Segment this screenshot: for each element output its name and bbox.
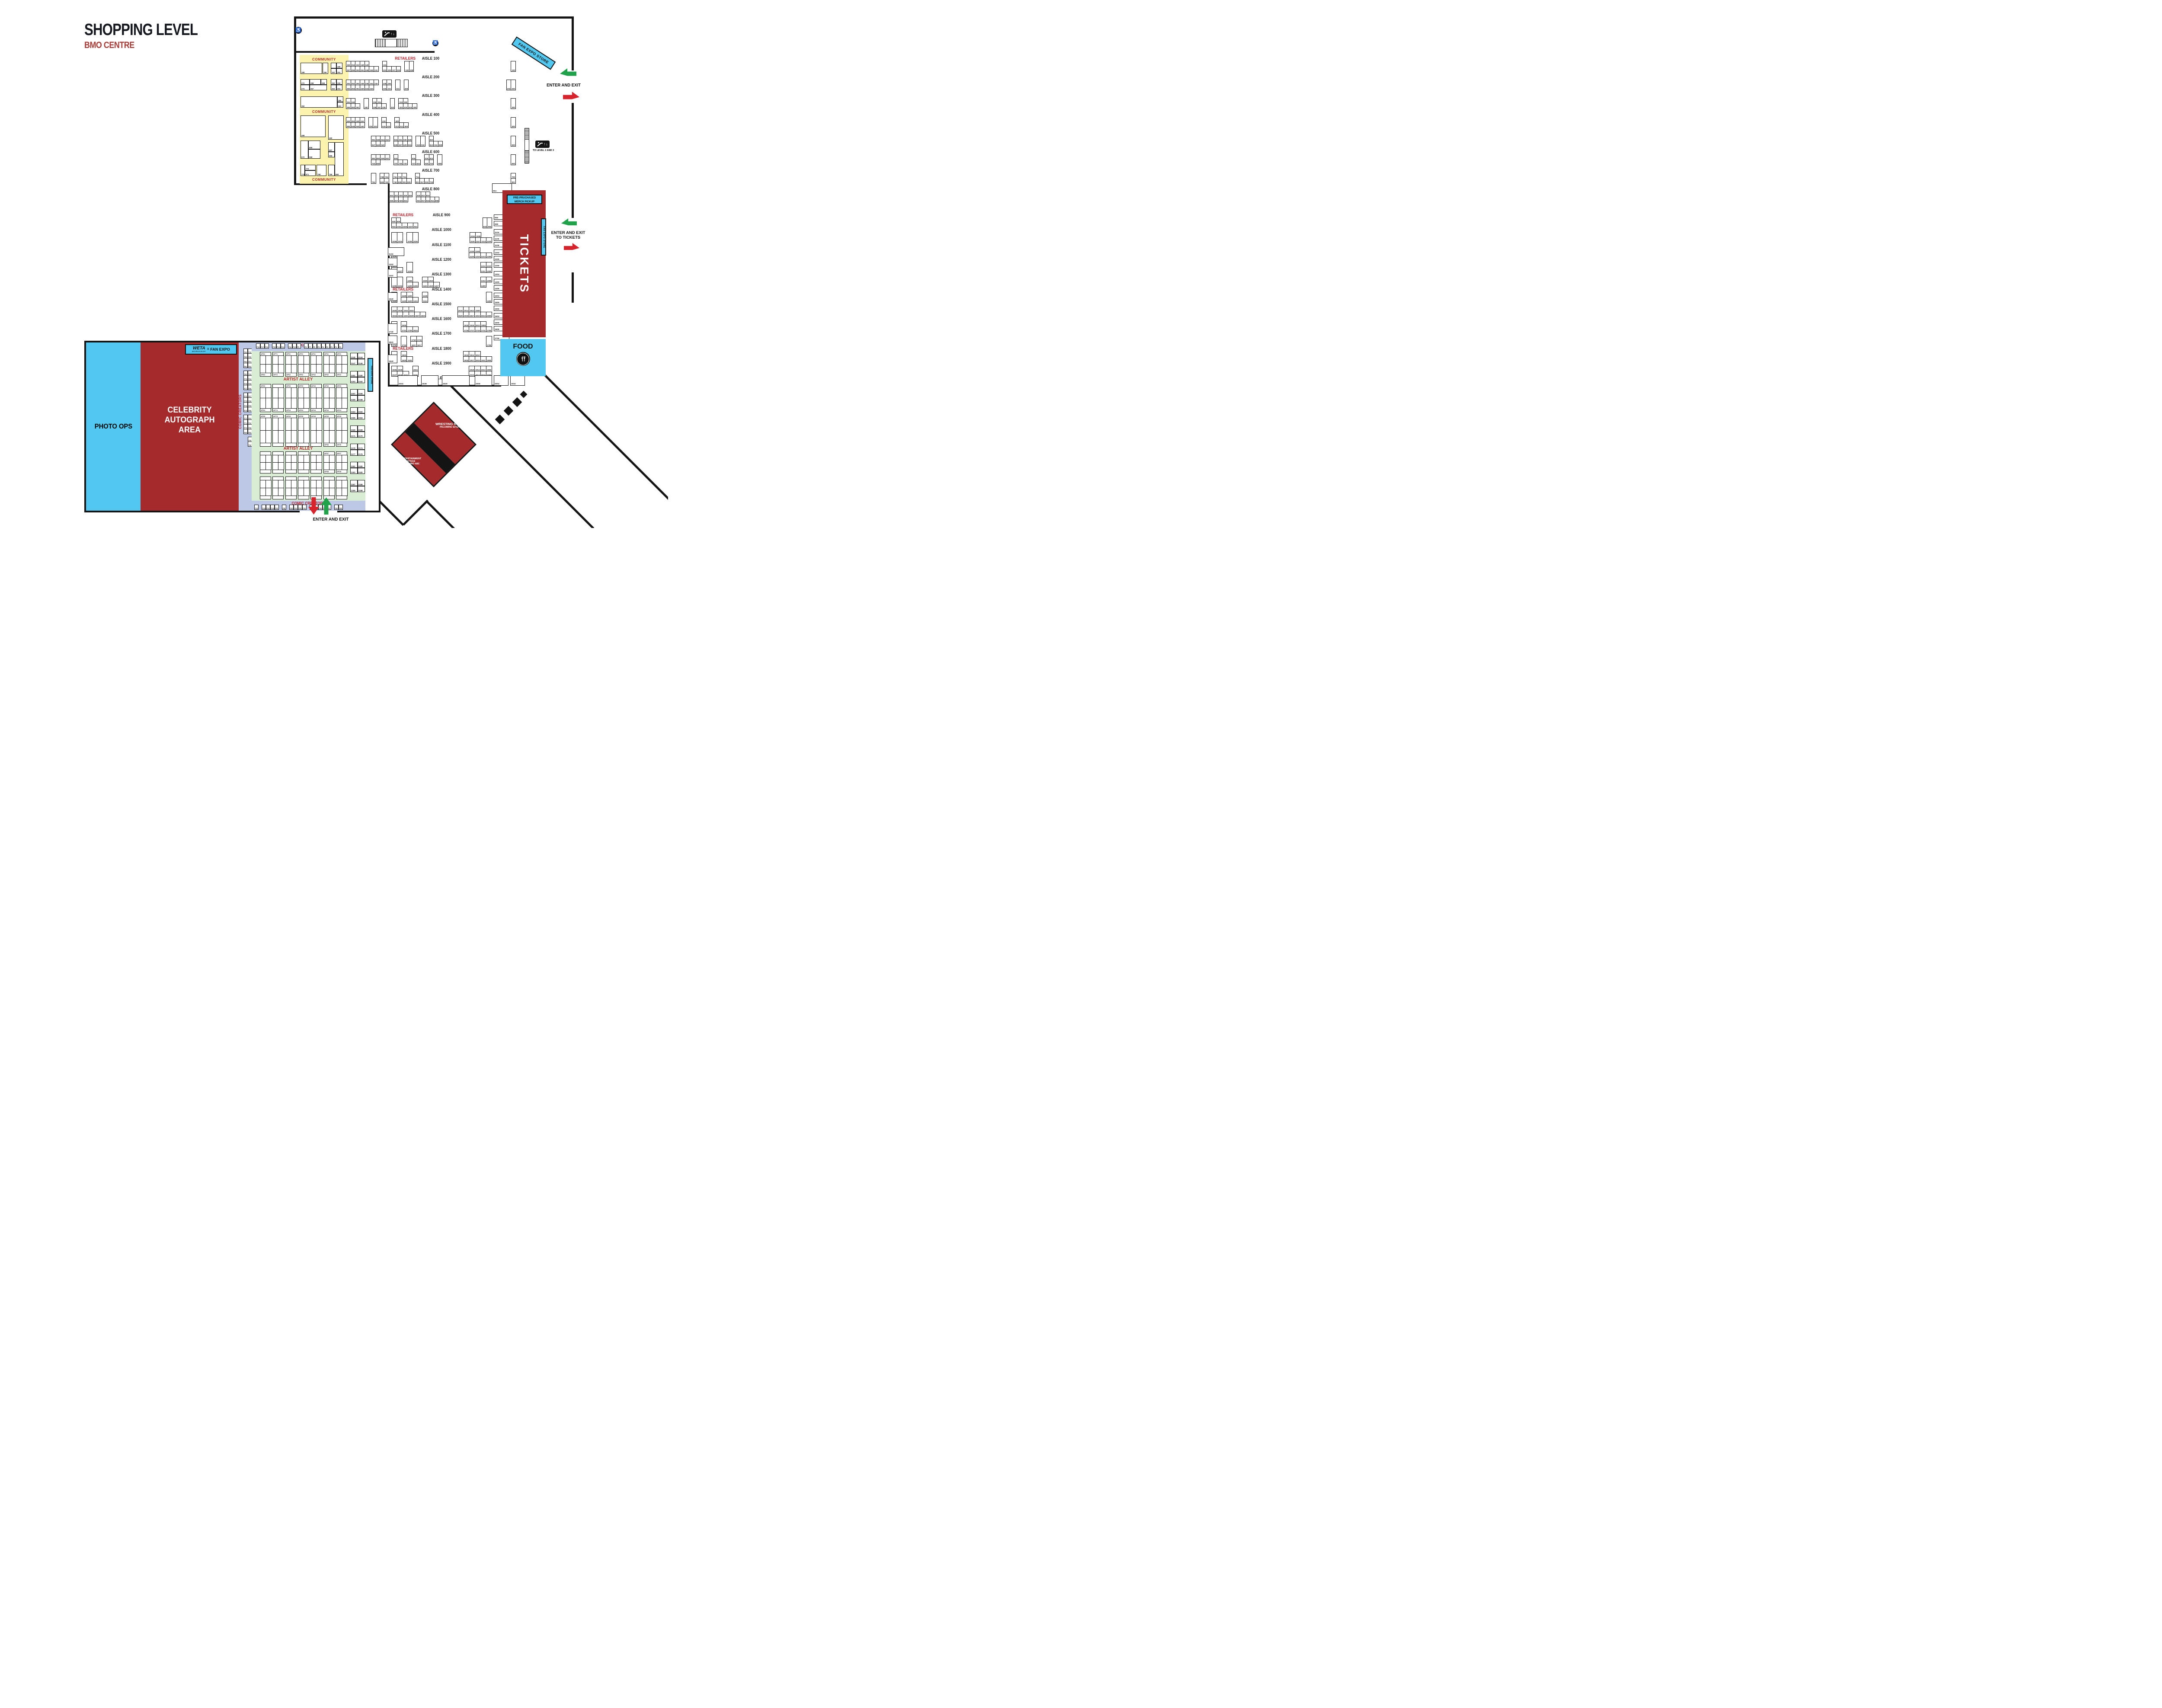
booth: 162: [331, 68, 336, 74]
artist-alley-cluster: AP43AP44: [310, 384, 322, 412]
booth: [342, 364, 348, 373]
booth: P92: [302, 505, 307, 510]
cluster-body: [272, 455, 284, 470]
artist-alley-cluster: AP21AP22: [336, 352, 347, 376]
booth: [336, 488, 342, 496]
booth-line: 1328: [406, 277, 418, 282]
booth: [272, 398, 278, 409]
booth: [272, 387, 278, 398]
booth-line: 320419415409: [398, 103, 417, 109]
booth: [291, 418, 297, 431]
booth: 409: [412, 103, 417, 109]
booth: [278, 462, 284, 470]
booth: 268: [310, 79, 321, 85]
booth: [310, 430, 317, 443]
booth-group: 336334338437435: [372, 98, 386, 109]
artist-alley-cluster: AP41AP42: [310, 352, 322, 376]
booth-row: 7547487448457407347307247368358318257148…: [371, 168, 515, 183]
artist-alley-cluster: AP33AP34: [323, 384, 335, 412]
wall-pocket: [425, 500, 455, 528]
booth: [260, 387, 266, 398]
booth: [316, 364, 322, 373]
escalator-glyph: [537, 142, 543, 147]
stairs-landing: [385, 39, 397, 47]
booth: 774: [301, 165, 305, 176]
booth: 1940: [388, 355, 397, 363]
booth: [260, 364, 266, 373]
aisle-label: AISLE 1500: [432, 302, 451, 306]
booth: 908: [487, 217, 492, 228]
cluster-body: [310, 480, 322, 496]
booth: 2168: [358, 425, 365, 432]
booth: [278, 418, 284, 431]
booth-line: 11181108: [469, 247, 492, 253]
booth: [278, 480, 284, 488]
artist-alley-cluster: [336, 477, 347, 499]
booth: [285, 430, 291, 443]
booth: [285, 418, 291, 431]
artist-alley-cluster: AP85: [260, 414, 271, 446]
page-title: SHOPPING LEVEL BMO CENTRE: [84, 21, 223, 51]
booth: [342, 398, 348, 409]
booth: 2176: [358, 450, 365, 456]
booth-group: 1216: [406, 262, 412, 272]
booth: 360: [337, 96, 343, 102]
aisle-label: AISLE 1000: [432, 227, 451, 232]
booth: P3: [326, 343, 330, 349]
booth: [304, 430, 310, 443]
enter-exit-label-right: ENTER AND EXIT: [547, 83, 581, 88]
cluster-body: [285, 355, 297, 373]
palomino-diamond: [391, 402, 477, 487]
aisle-label: AISLE 800: [422, 187, 440, 191]
booth: 2175: [350, 444, 358, 450]
booth-line: 1216: [406, 262, 412, 272]
booth: P17: [260, 343, 265, 349]
booth: P4: [321, 343, 326, 349]
aisle-label: AISLE 1200: [432, 257, 451, 262]
booth-group: 734730724736835831825: [393, 173, 411, 183]
booth: 824: [403, 197, 408, 202]
tickets-area: TICKETS: [502, 190, 546, 337]
booth-line: 608: [437, 154, 442, 165]
cluster-label-bottom: AP24: [336, 408, 347, 412]
booth-line: 743640: [371, 160, 390, 165]
booth: 461: [337, 102, 343, 108]
weta-logo: WETA WORKSHOP: [192, 346, 206, 352]
wall-right-1: [572, 16, 574, 70]
cluster-body: [323, 418, 335, 443]
booth-line: 434424: [368, 117, 377, 128]
booth: 367: [310, 85, 327, 90]
booth: [260, 488, 266, 496]
cluster-body: [323, 355, 335, 373]
booth-group: 182419291925: [401, 351, 412, 361]
cluster-label-bottom: [260, 496, 271, 499]
merch-line2: MERCH PICKUP: [508, 200, 541, 204]
food-icon: [516, 352, 530, 366]
artist-alley-cluster: AP83AP84: [260, 384, 271, 412]
cluster-label-bottom: AP28: [336, 470, 347, 473]
booth: 2150: [358, 371, 365, 377]
aisle-band: AISLE 1200122613291327121612121210131112…: [391, 257, 492, 272]
merch-line1: PRE-PRUCHASED: [508, 196, 541, 200]
merch-pickup-tag: PRE-PRUCHASED MERCH PICKUP: [507, 195, 542, 204]
booth: [342, 387, 348, 398]
enter-arrow-icon: [561, 218, 577, 228]
booth-group: 748744845740: [380, 173, 389, 183]
booth-line: 613611508: [429, 141, 443, 146]
booth-group: 754: [371, 173, 376, 183]
booth: 2162: [358, 407, 365, 413]
aisle-band: AISLE 1500153015261524152215341633163116…: [391, 302, 492, 317]
booth: [336, 387, 342, 398]
booth: [291, 355, 297, 365]
booth: [331, 63, 336, 68]
booth-group: 1718171618211817: [410, 336, 422, 346]
cluster-label-bottom: [336, 496, 347, 499]
booth-group: 518516: [416, 136, 425, 146]
booth: P86: [334, 505, 339, 510]
booth: 2171: [350, 432, 358, 438]
cluster-body: [298, 480, 309, 496]
booth: [291, 398, 297, 409]
food-area: FOOD: [500, 339, 546, 376]
cluster-label-bottom: [285, 496, 297, 499]
cluster-body: [336, 455, 347, 470]
booth-group: 608: [437, 154, 442, 165]
booth: 2002: [510, 375, 525, 386]
booth: 540: [380, 141, 385, 147]
booth: 2028: [421, 375, 438, 386]
community-label: COMMUNITY: [301, 109, 347, 114]
booth: [323, 418, 329, 431]
booth: P8: [304, 343, 308, 349]
booth: [316, 488, 322, 496]
cluster-label-bottom: AP36: [323, 443, 335, 447]
booth: P9: [297, 343, 301, 349]
booth-group: 600: [511, 154, 515, 165]
booth: [298, 398, 304, 409]
booth-group: 100: [511, 61, 515, 71]
booth: P16: [265, 343, 269, 349]
cluster-label-bottom: AP38: [323, 470, 335, 473]
booth: P6: [313, 343, 317, 349]
booth-line: 616614: [424, 154, 433, 160]
aisle-label: AISLE 1400: [432, 287, 451, 291]
booth: 2147: [350, 359, 358, 365]
south-entrance-gap: [300, 510, 337, 514]
artist-alley-label: ARTIST ALLEY: [254, 446, 342, 451]
booth: [260, 430, 266, 443]
booth: [265, 364, 272, 373]
up-arrow-glyph: ↑: [544, 142, 546, 146]
booth: P13: [281, 343, 285, 349]
cluster-label-bottom: AP84: [260, 408, 271, 412]
artist-alley-cluster: AP61AP62: [285, 352, 297, 376]
retailers-label: RETAILERS: [393, 213, 413, 217]
booth: [298, 430, 304, 443]
booth: [329, 418, 335, 431]
celebrity-line3: AREA: [143, 425, 237, 435]
booth-group: 418519416: [381, 117, 390, 128]
booth: [265, 480, 272, 488]
booth-group: 224: [395, 80, 400, 90]
booth-group: 1626173117291624: [401, 321, 418, 332]
booth-line: 647643540: [371, 141, 390, 146]
cluster-label-bottom: [260, 470, 271, 473]
booth: P95: [289, 505, 294, 510]
aisle-band: AISLE 1300133613341328142913261320131614…: [391, 272, 492, 287]
booth: [323, 355, 329, 365]
booth: 1841: [388, 336, 397, 344]
artist-alley-cluster: AP23AP24: [336, 384, 347, 412]
wall-notch-up: [403, 499, 429, 525]
artist-alley-cluster: [323, 477, 335, 499]
booth: [291, 462, 297, 470]
wall-notch-down: [378, 500, 404, 526]
lower-aisles: RETAILERSAISLE 9009309269341031102910279…: [391, 213, 492, 386]
booth: [342, 355, 348, 365]
cluster-label-bottom: [272, 496, 284, 499]
booth: 608: [437, 154, 442, 165]
booth: [285, 364, 291, 373]
aisle-band: AISLE 1900193619302037203520311924202519…: [391, 361, 492, 376]
booth: [336, 430, 342, 443]
aisle-label: AISLE 1800: [432, 346, 451, 351]
booth-group: 161816161612160817191717171517111709: [463, 321, 492, 332]
booth-group: 1408: [486, 292, 492, 302]
booth-line: 238236: [382, 80, 391, 85]
booth-line: 14281426: [401, 292, 418, 297]
booth-line: 124: [382, 61, 401, 66]
booth: [310, 462, 317, 470]
booth-group: 400: [511, 117, 515, 128]
stairwell-icon: [525, 128, 529, 140]
booth-line: 257255253251249245241: [346, 66, 378, 71]
community-area: COMMUNITYCOMMUNITYCOMMUNITY1681661601622…: [300, 55, 349, 184]
booth: 2037: [391, 371, 397, 377]
cluster-body: [310, 418, 322, 443]
booth: [342, 480, 348, 488]
down-arrow-glyph: ↓: [393, 32, 395, 36]
booth-group: 101610081119111711131109: [470, 232, 492, 243]
stairs-icon: [397, 39, 408, 47]
booth-group: 10281026: [406, 232, 418, 243]
cluster-label-bottom: [323, 496, 335, 499]
booth: 1724: [401, 336, 407, 347]
exit-arrow-icon: [564, 243, 579, 253]
booth-line: 418: [381, 117, 390, 122]
booth: 770: [305, 165, 316, 170]
booth: [310, 418, 317, 431]
booth: [265, 455, 272, 463]
booth: 2151: [350, 371, 358, 377]
booth: 2034: [398, 375, 418, 386]
wall-right-2: [572, 103, 574, 218]
booth: P18: [256, 343, 260, 349]
booth-line: 340: [364, 98, 368, 109]
booth: 1336: [391, 277, 397, 288]
booth: 234: [387, 85, 392, 90]
booth-line: 118108: [404, 61, 413, 71]
booth: 273: [301, 85, 310, 90]
artist-alley-cluster: AP53AP54: [298, 384, 309, 412]
booth: [329, 488, 335, 496]
cluster-label-bottom: AP42: [310, 373, 322, 377]
booth: [278, 488, 284, 496]
booth: [285, 455, 291, 463]
booth: 500: [511, 136, 516, 147]
fork-knife-glyph: [520, 355, 527, 362]
booth-line: 10361034: [391, 232, 403, 243]
aisle-label: AISLE 700: [422, 168, 440, 173]
booth: [310, 364, 317, 373]
booth: 2174: [358, 444, 365, 450]
booth-group: 156154152148140257255253251249245241: [346, 61, 378, 71]
fan-expo-store-tag-alley: FAN EXPO STORE: [368, 358, 373, 392]
escalator-glyph: [384, 32, 390, 37]
booth: 708: [429, 178, 434, 184]
booth: 435: [381, 103, 387, 109]
booth: [272, 430, 278, 443]
booth: [310, 398, 317, 409]
booth: [329, 462, 335, 470]
cluster-body: [272, 387, 284, 408]
cluster-body: [298, 387, 309, 408]
booth: 451: [355, 103, 360, 109]
entertainment-stage-label: ENTERTAINMENT STAGE PALOMINO ABC: [390, 457, 432, 465]
booth: 1036: [391, 232, 397, 243]
booth: 300: [511, 98, 516, 109]
cluster-body: [285, 418, 297, 443]
booth-line: 254252250248246244242: [346, 80, 378, 85]
booth-group: 626727624: [411, 154, 420, 165]
booth-line: 1418: [422, 292, 428, 297]
booth: [291, 480, 297, 488]
booth: [304, 387, 310, 398]
booth: 324: [390, 98, 395, 109]
booth-group: 19242025: [413, 366, 418, 376]
booth: 361: [336, 85, 342, 90]
booth: 624: [416, 160, 421, 165]
booth: P96: [282, 505, 286, 510]
booth-line: 600: [511, 154, 515, 165]
booth: [316, 387, 322, 398]
booth-line: 318308: [398, 98, 417, 103]
booth: 509: [403, 122, 409, 128]
booth: 1740: [388, 323, 397, 334]
escalator-icon: ↑↓: [382, 30, 397, 38]
aisle-label: AISLE 100: [422, 56, 440, 61]
booth-line: 1618161616121608: [463, 321, 492, 326]
booth-line: 19361930: [391, 366, 409, 371]
booth: 2019: [469, 371, 475, 377]
booth: 416: [386, 122, 391, 128]
booth: [291, 387, 297, 398]
booth-line: 208: [404, 80, 409, 90]
booth: 272: [301, 79, 310, 85]
booth: 508: [438, 141, 443, 147]
celebrity-line2: AUTOGRAPH: [143, 415, 237, 425]
cluster-label-bottom: AP72: [272, 373, 284, 377]
booth: [316, 418, 322, 431]
booth: [336, 364, 342, 373]
booth: 208: [404, 80, 409, 90]
artist-alley-cluster: [298, 451, 309, 473]
booth: 2144: [358, 353, 365, 359]
aisle-band: AISLE 2002542522502482462442423553533513…: [346, 75, 515, 90]
booth: 100: [511, 61, 516, 72]
booth: [342, 418, 348, 431]
booth-group: 132814291326: [406, 277, 418, 287]
aisle-label: AISLE 600: [422, 150, 440, 154]
booth: 1408: [486, 292, 492, 303]
p-group: P15P14P13: [272, 343, 285, 349]
cluster-label-bottom: [285, 470, 297, 473]
booth-line: 1708: [486, 336, 492, 346]
booth-line: 300: [511, 98, 515, 109]
booth: P93: [298, 505, 302, 510]
booth-line: 12121210: [480, 262, 492, 267]
weta-fan-expo-badge: WETA WORKSHOP X FAN EXPO: [185, 344, 237, 355]
booth-line: 634: [393, 154, 407, 160]
cluster-body: [298, 455, 309, 470]
cluster-label-bottom: AP32: [323, 373, 335, 377]
booth: 2146: [358, 359, 365, 365]
booth-line: 519416: [381, 122, 390, 128]
booth: 524: [407, 141, 413, 147]
booth-group: 434424: [368, 117, 377, 128]
booth: [265, 387, 272, 398]
photo-ops-label: PHOTO OPS: [94, 423, 132, 431]
cluster-body: [260, 355, 271, 373]
booth: [310, 480, 317, 488]
booth: 669: [308, 141, 320, 149]
weta-x: X: [207, 348, 209, 351]
artist-alley-cluster: [298, 477, 309, 499]
booth: [342, 430, 348, 443]
booth: [298, 364, 304, 373]
celebrity-line1: CELEBRITY: [143, 405, 237, 415]
booth: 2183: [350, 468, 358, 474]
aisle-label: AISLE 1700: [432, 331, 451, 336]
booth: [272, 480, 278, 488]
booth-line: 1119111711131109: [470, 237, 492, 243]
booth-group: 1708: [486, 336, 492, 346]
booth: [310, 488, 317, 496]
booth: 340: [364, 98, 369, 109]
booth: 733: [403, 160, 408, 165]
cluster-body: [260, 480, 271, 496]
cluster-body: [285, 480, 297, 496]
booth: 2186: [358, 480, 365, 486]
cluster-label-bottom: AP22: [336, 373, 347, 377]
booth: 200: [511, 80, 516, 90]
comic-creators-label-vert: COMIC CREATORS: [238, 394, 242, 429]
booth-line: 181618141810: [463, 351, 492, 356]
booth-group: 616614620715: [424, 154, 433, 165]
booth: [323, 364, 329, 373]
p-group: P95P94P93P92: [289, 505, 307, 510]
booth-group: 238236335234: [382, 80, 391, 90]
booth: [285, 462, 291, 470]
booth-row: 5545485445426476435405345325305286396376…: [371, 131, 515, 146]
booth: 460: [328, 115, 344, 140]
booth: [272, 418, 278, 431]
stage-line3: PALOMINO ABC: [390, 463, 432, 465]
booth-group: 13361334: [391, 277, 403, 287]
